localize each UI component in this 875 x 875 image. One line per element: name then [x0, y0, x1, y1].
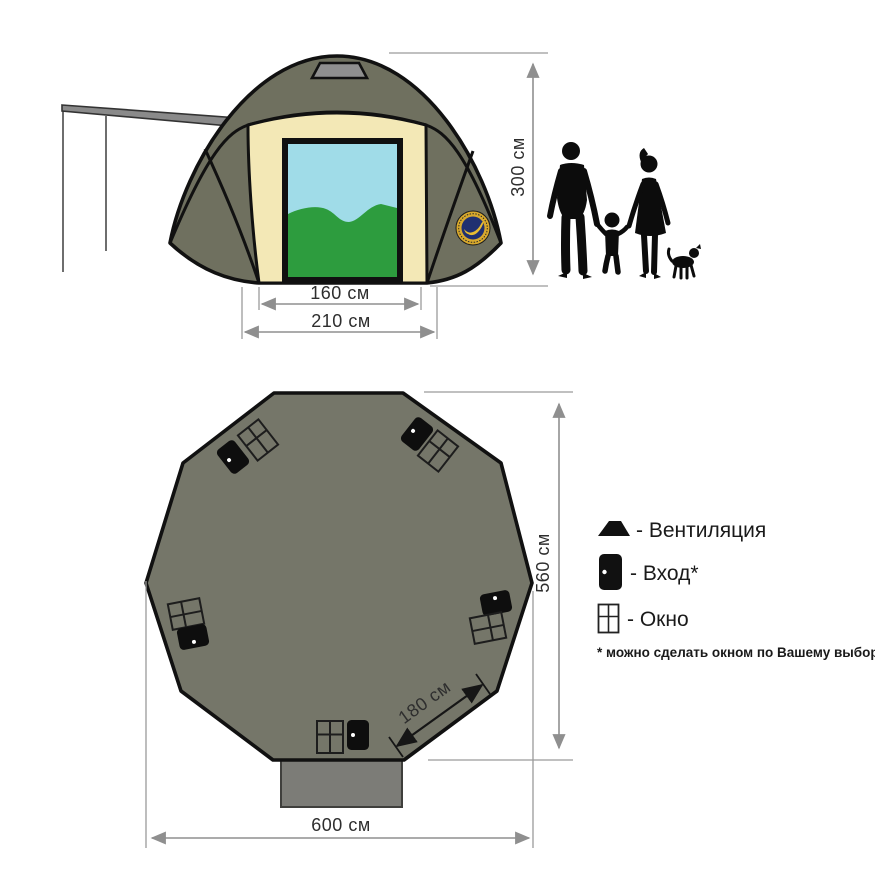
legend-footnote: * можно сделать окном по Вашему выбору — [597, 645, 875, 660]
child-silhouette — [598, 213, 627, 273]
entrance-label: - Вход* — [630, 562, 699, 585]
floor-plan: 560 см 600 см 180 см — [146, 392, 573, 848]
ventilation-label: - Вентиляция — [636, 519, 766, 542]
logo-badge — [456, 211, 490, 245]
door-width-label: 160 см — [310, 283, 369, 303]
legend: - Вентиляция - Вход* - Окно * можно сдел… — [597, 519, 875, 660]
vent-trapezoid-icon — [598, 521, 630, 536]
woman-silhouette — [629, 148, 668, 279]
floor-plan-polygon — [146, 393, 532, 760]
depth-label: 560 см — [533, 533, 553, 592]
family-silhouette — [550, 142, 701, 279]
door-icon — [347, 720, 369, 750]
window-label: - Окно — [627, 608, 689, 631]
tent-diagram: 160 см 210 см 300 см — [0, 0, 875, 875]
dog-silhouette — [668, 244, 701, 278]
legend-row-ventilation: - Вентиляция — [598, 519, 766, 542]
width-label: 600 см — [311, 815, 370, 835]
legend-row-entrance: - Вход* — [599, 554, 699, 590]
diagram-svg: 160 см 210 см 300 см — [0, 0, 875, 875]
base-width-label: 210 см — [311, 311, 370, 331]
door-front — [282, 138, 403, 283]
vestibule — [281, 758, 402, 807]
height-label: 300 см — [508, 137, 528, 196]
legend-row-window: - Окно — [599, 605, 689, 633]
tent-front-view: 160 см 210 см 300 см — [62, 53, 548, 339]
vent-trapezoid-icon — [312, 63, 367, 78]
man-silhouette — [550, 142, 597, 279]
